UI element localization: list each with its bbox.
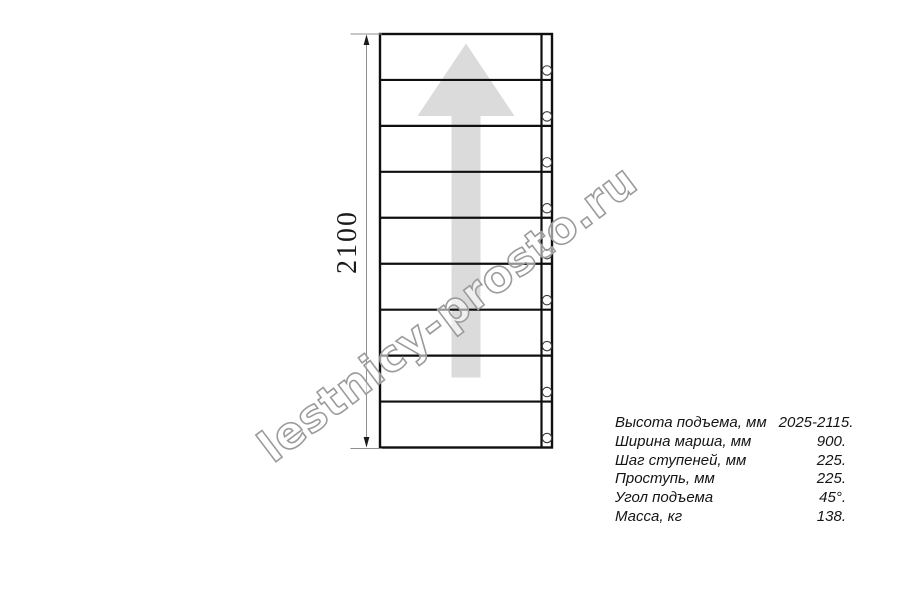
bolt-hole-icon: [542, 341, 551, 350]
drawing-canvas: 2100 lestnicy-prosto.ru Высота подъема, …: [0, 0, 900, 600]
spec-value: 45°.: [819, 489, 846, 508]
spec-label: Высота подъема, мм: [615, 414, 767, 433]
spec-value: 225.: [817, 470, 846, 489]
spec-row: Масса, кг138.: [615, 508, 846, 527]
spec-label: Угол подъема: [615, 489, 713, 508]
bolt-hole-icon: [542, 66, 551, 75]
spec-row: Угол подъема45°.: [615, 489, 846, 508]
bolt-hole-icon: [542, 433, 551, 442]
bolt-hole-icon: [542, 112, 551, 121]
bolt-hole-icon: [542, 387, 551, 396]
spec-label: Масса, кг: [615, 508, 682, 527]
spec-label: Шаг ступеней, мм: [615, 452, 746, 471]
dimension-arrowhead-up: [364, 35, 370, 46]
spec-table: Высота подъема, мм2025-2115.Ширина марша…: [615, 414, 846, 527]
spec-value: 2025-2115.: [779, 414, 854, 433]
spec-row: Проступь, мм225.: [615, 470, 846, 489]
spec-value: 138.: [817, 508, 846, 527]
bolt-hole-icon: [542, 158, 551, 167]
spec-row: Ширина марша, мм900.: [615, 433, 846, 452]
spec-label: Ширина марша, мм: [615, 433, 751, 452]
dimension-arrowhead-down: [364, 437, 370, 448]
spec-value: 225.: [817, 452, 846, 471]
spec-value: 900.: [817, 433, 846, 452]
dimension-label: 2100: [332, 210, 364, 274]
spec-label: Проступь, мм: [615, 470, 715, 489]
spec-row: Шаг ступеней, мм225.: [615, 452, 846, 471]
bolt-hole-icon: [542, 295, 551, 304]
spec-row: Высота подъема, мм2025-2115.: [615, 414, 846, 433]
